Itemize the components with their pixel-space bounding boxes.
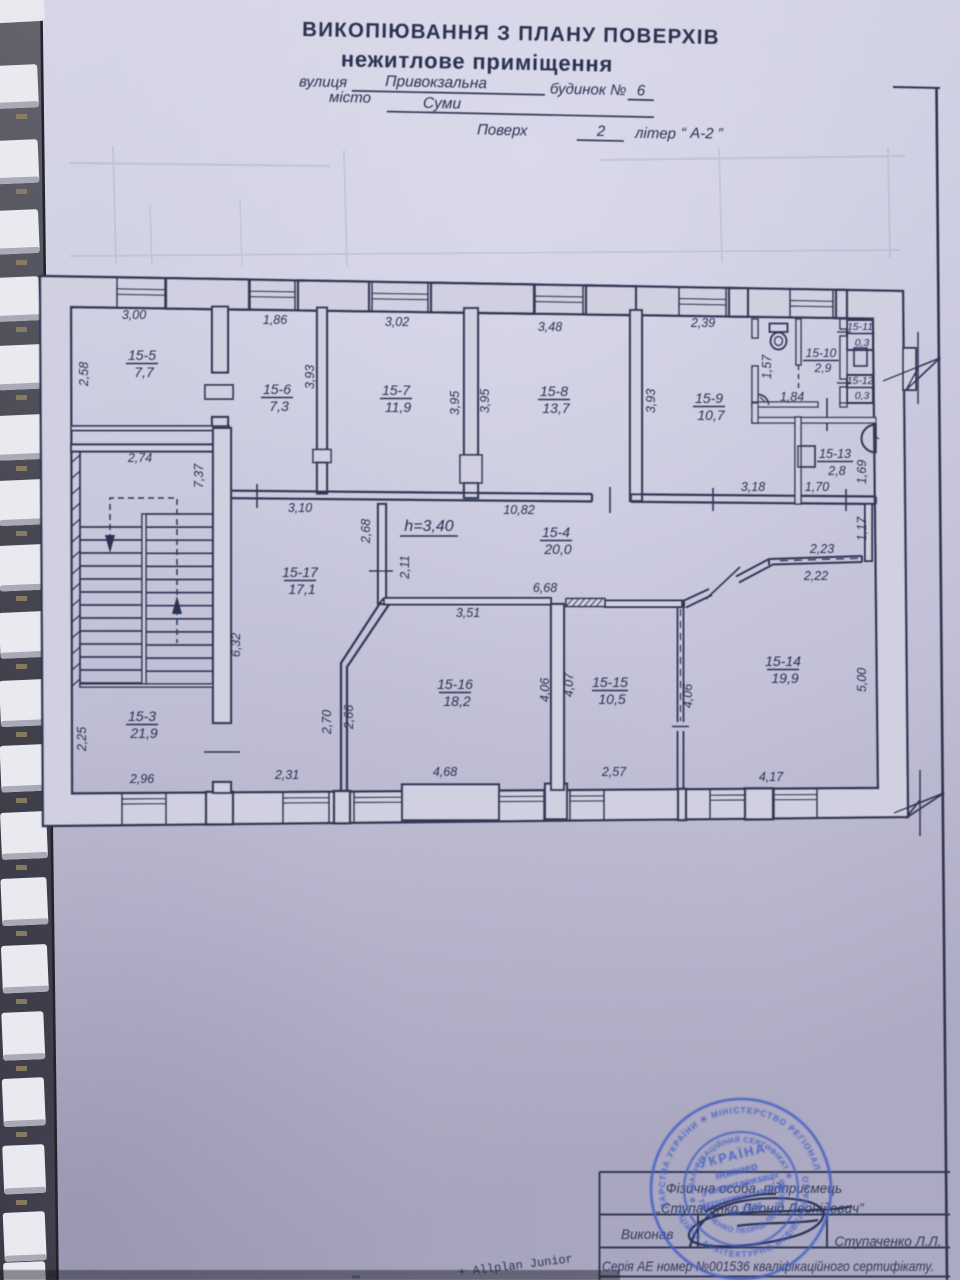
svg-text:1,69: 1,69: [855, 460, 869, 484]
svg-text:15-4: 15-4: [542, 524, 570, 540]
svg-text:3,00: 3,00: [122, 308, 146, 322]
svg-text:7,37: 7,37: [192, 463, 206, 488]
svg-text:17,1: 17,1: [288, 581, 315, 597]
svg-text:Ступаченко Л.Л.: Ступаченко Л.Л.: [834, 1234, 941, 1249]
svg-text:4,07: 4,07: [562, 672, 576, 697]
svg-text:15-17: 15-17: [282, 564, 319, 580]
svg-text:15-14: 15-14: [765, 653, 801, 669]
svg-text:0,3: 0,3: [855, 337, 870, 349]
svg-text:1,84: 1,84: [780, 390, 804, 404]
svg-text:нежитлове приміщення: нежитлове приміщення: [341, 46, 614, 76]
svg-text:2: 2: [596, 123, 606, 140]
svg-text:4,17: 4,17: [759, 770, 784, 784]
svg-text:3,95: 3,95: [448, 391, 462, 415]
svg-text:2,11: 2,11: [398, 555, 412, 579]
svg-text:Суми: Суми: [423, 95, 462, 113]
svg-text:2,23: 2,23: [809, 542, 834, 556]
svg-text:2,70: 2,70: [320, 710, 334, 735]
svg-text:2,31: 2,31: [274, 768, 299, 782]
svg-text:2,39: 2,39: [690, 316, 715, 330]
svg-text:20,0: 20,0: [543, 541, 571, 557]
svg-text:2,8: 2,8: [827, 464, 845, 478]
svg-text:15-3: 15-3: [128, 708, 156, 724]
svg-text:місто: місто: [329, 89, 371, 107]
svg-text:2,74: 2,74: [127, 451, 152, 465]
svg-text:“ А-2 ”: “ А-2 ”: [681, 125, 724, 143]
svg-text:6,68: 6,68: [533, 581, 557, 595]
svg-text:4,68: 4,68: [433, 765, 457, 779]
svg-text:4,06: 4,06: [538, 678, 552, 702]
svg-text:2,58: 2,58: [77, 362, 91, 387]
svg-text:15-13: 15-13: [819, 447, 851, 461]
svg-text:7,3: 7,3: [269, 398, 289, 414]
svg-text:3,93: 3,93: [644, 389, 658, 413]
svg-text:1,17: 1,17: [855, 516, 869, 541]
svg-text:1,57: 1,57: [760, 354, 774, 379]
svg-text:18,2: 18,2: [443, 693, 470, 709]
svg-text:3,93: 3,93: [303, 365, 317, 389]
svg-text:3,10: 3,10: [288, 501, 312, 515]
svg-text:1,86: 1,86: [263, 313, 287, 327]
svg-text:3,51: 3,51: [456, 606, 480, 620]
svg-text:3,48: 3,48: [538, 320, 562, 334]
svg-text:2,57: 2,57: [601, 765, 627, 779]
svg-text:15-9: 15-9: [695, 390, 723, 406]
svg-text:15-10: 15-10: [806, 346, 837, 360]
svg-text:15-6: 15-6: [263, 381, 291, 397]
svg-text:11,9: 11,9: [385, 399, 411, 415]
svg-text:10,82: 10,82: [503, 503, 534, 517]
svg-text:15-16: 15-16: [437, 676, 473, 692]
svg-text:2,66: 2,66: [342, 705, 356, 730]
svg-text:6: 6: [637, 82, 646, 99]
svg-text:13,7: 13,7: [542, 400, 570, 416]
svg-text:15-11: 15-11: [847, 321, 873, 333]
svg-text:літер: літер: [634, 125, 676, 143]
svg-text:3,18: 3,18: [741, 480, 765, 494]
svg-text:Привокзальна: Привокзальна: [385, 73, 487, 92]
svg-text:3,02: 3,02: [385, 315, 409, 329]
svg-text:15-8: 15-8: [540, 383, 568, 399]
svg-text:5,00: 5,00: [855, 668, 869, 692]
svg-text:1,70: 1,70: [805, 480, 829, 494]
svg-text:2,22: 2,22: [803, 569, 828, 583]
svg-text:7,7: 7,7: [134, 364, 155, 380]
svg-text:h=3,40: h=3,40: [404, 518, 453, 535]
svg-text:будинок №: будинок №: [550, 80, 627, 99]
svg-text:6,32: 6,32: [229, 633, 243, 657]
svg-text:10,5: 10,5: [598, 691, 625, 707]
svg-text:10,7: 10,7: [697, 407, 725, 423]
svg-text:21,9: 21,9: [129, 725, 157, 741]
svg-text:2,96: 2,96: [129, 772, 154, 786]
svg-text:19,9: 19,9: [771, 670, 798, 686]
svg-text:15-5: 15-5: [128, 347, 156, 363]
svg-text:2,68: 2,68: [359, 519, 373, 544]
svg-text:Поверх: Поверх: [477, 121, 528, 139]
svg-text:3,95: 3,95: [478, 389, 492, 413]
svg-text:4,06: 4,06: [681, 684, 695, 708]
svg-text:15-7: 15-7: [382, 382, 411, 398]
svg-text:15-12: 15-12: [847, 375, 874, 387]
svg-text:0,3: 0,3: [855, 390, 870, 402]
svg-text:Серія АЕ номер №001536 кваліфі: Серія АЕ номер №001536 кваліфікаційного …: [602, 1258, 934, 1274]
svg-text:2,9: 2,9: [814, 361, 832, 375]
svg-text:2,25: 2,25: [75, 727, 89, 752]
svg-text:15-15: 15-15: [592, 674, 628, 690]
